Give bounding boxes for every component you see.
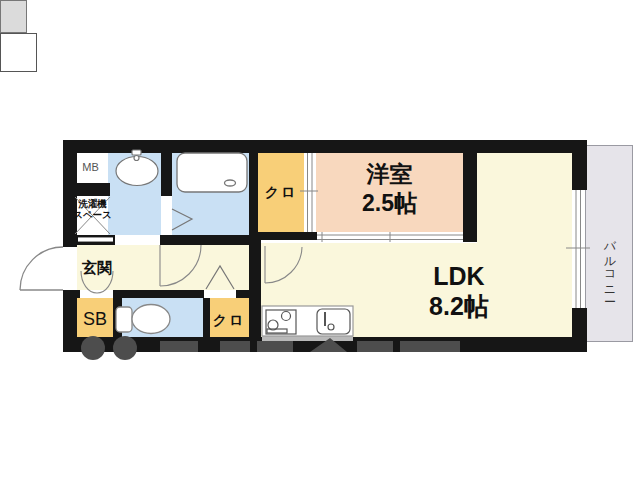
toilet-folding-door-icon	[206, 266, 234, 289]
laundry-space-label: 洗濯機 スペース	[72, 199, 113, 221]
ldk-size: 8.2帖	[380, 291, 538, 321]
ldk-label: LDK 8.2帖	[380, 261, 538, 321]
closet-lower-label: クロ	[204, 312, 254, 328]
bathtub-icon	[177, 153, 247, 192]
floorplan-canvas: バルコニー	[0, 0, 640, 480]
western-room-label: 洋室 2.5帖	[316, 160, 463, 218]
washroom-door-icon	[160, 245, 201, 286]
toilet-icon	[116, 305, 170, 334]
counter-shadow	[262, 336, 353, 341]
laundry-label-line2: スペース	[72, 210, 113, 221]
shoe-box-label: SB	[77, 309, 113, 330]
meter-box-label: MB	[77, 161, 104, 174]
kitchen-counter	[262, 306, 353, 341]
washbasin-icon	[116, 150, 158, 186]
ldk-name: LDK	[380, 261, 538, 291]
western-room-name: 洋室	[316, 160, 463, 189]
plan-linework	[0, 0, 640, 480]
western-room-size: 2.5帖	[316, 189, 463, 218]
ldk-door-icon	[265, 246, 302, 283]
closet-upper-label: クロ	[258, 184, 304, 200]
bath-folding-door-icon	[172, 209, 192, 230]
entrance-door-icon	[20, 247, 63, 290]
entrance-label: 玄関	[76, 259, 118, 276]
